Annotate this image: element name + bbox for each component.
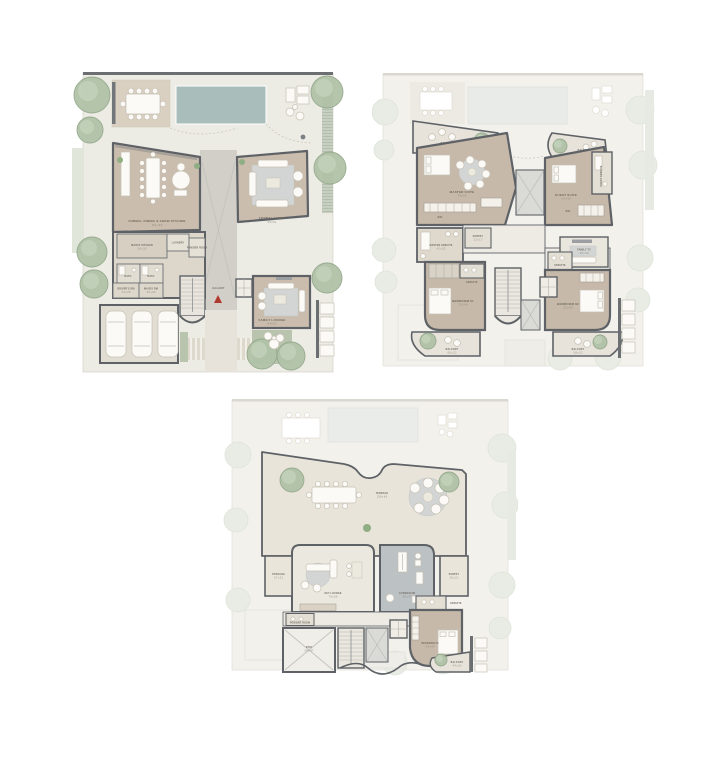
wardrobe-row: [412, 616, 419, 640]
car-icon: [106, 311, 126, 357]
room-label-sky-lounge: SKY LOUNGE: [324, 593, 341, 595]
tv-unit: [276, 277, 292, 280]
room-dims: 5.4 x 4.6: [562, 199, 572, 201]
room-label-maids-kitchen: MAID'S KITCHEN: [131, 244, 153, 247]
planter-icon: [194, 163, 200, 169]
bed: [438, 630, 458, 654]
room-label-terrace: TERRACE: [376, 492, 389, 495]
ghost-boundary: [383, 73, 643, 76]
tv-unit: [572, 240, 592, 244]
planter-icon: [239, 159, 245, 165]
room-label-balcony: BALCONY: [451, 661, 464, 664]
room-dims: 5.6 x 4.7: [403, 596, 413, 598]
potted-tree-icon: [439, 472, 459, 492]
driveway-walk: [205, 310, 237, 372]
room-label-formal-dining: FORMAL DINING & SHOW KITCHEN: [128, 219, 185, 223]
room-dims: 6.6 x 6.1: [268, 222, 278, 224]
floor-plan-sheet: GALLERY FORMAL DINING & SHOW KITCHEN 10.…: [0, 0, 727, 767]
ground-floor-plan: GALLERY FORMAL DINING & SHOW KITCHEN 10.…: [68, 56, 348, 378]
potted-tree-icon: [420, 333, 436, 349]
elevator: [540, 277, 557, 297]
room-maids: [139, 283, 163, 298]
elevator: [236, 279, 252, 297]
room-label-master-wic: WIC: [437, 217, 442, 219]
pergola: [618, 298, 635, 358]
room-storage: [265, 556, 292, 596]
room-label-storage: STORAGE: [272, 573, 285, 576]
ghost-tree-icon: [489, 617, 511, 639]
potted-plant-icon: [435, 654, 447, 666]
room-label-formal-living: FORMAL LIVING: [259, 216, 286, 220]
room-label-family-lounge: FAMILY LOUNGE: [259, 318, 286, 322]
ghost-tree-icon: [627, 245, 653, 271]
planter-icon: [363, 524, 371, 532]
room-label-pantry: PANTRY: [449, 573, 460, 576]
room-label-gallery: GALLERY: [212, 287, 225, 290]
hall: [548, 252, 572, 270]
room-label-drivers: DRIVER'S RM: [117, 289, 134, 291]
second-floor-plan: TERRACE 15.8 x 6.6 SKY LOUNGE 7.6 x 5.6 …: [222, 390, 518, 680]
bed: [424, 155, 450, 175]
tree-icon: [277, 342, 305, 370]
bed: [580, 290, 604, 312]
room-label-pantry: PANTRY: [473, 235, 484, 238]
ghost-tree-icon: [374, 140, 394, 160]
room-dims: 5.2 x 4.4: [459, 305, 469, 307]
first-floor-plan: BALCONY 7.4 x 2.5 BALCONY MASTER SUITE 7…: [372, 60, 670, 382]
room-label-gym: GYMNASIUM: [399, 592, 415, 595]
room-label-master-suite: MASTER SUITE: [450, 190, 475, 194]
room-label-bedroom-02: BEDROOM 02: [557, 302, 579, 306]
site-dot: [301, 135, 306, 140]
room-dims: 6.0 x 2.2: [448, 352, 458, 354]
room-label-balcony-bl: BALCONY: [446, 348, 459, 351]
boundary-wall: [83, 72, 333, 75]
ghost-tree-icon: [372, 238, 396, 262]
room-label-guest-suite: GUEST SUITE: [555, 193, 577, 197]
ghost-hedge: [645, 90, 654, 210]
ghost-driveway: [505, 340, 545, 366]
ghost-tree-icon: [372, 99, 398, 125]
car-icon: [158, 311, 178, 357]
room-label-void: VOID: [306, 647, 313, 649]
room-dims: 4.4 x 2.6: [453, 665, 463, 667]
room-label-guest-ensuite: GUEST ENSUITE: [601, 165, 603, 186]
ghost-pool: [328, 408, 418, 442]
ghost-tree-icon: [224, 508, 248, 532]
room-label-bedroom-01: BEDROOM 01: [452, 299, 474, 303]
room-label-laundry: LAUNDRY: [172, 242, 185, 245]
room-pantry: [440, 556, 468, 596]
room-label-bath-2: BATH: [147, 275, 154, 278]
bed: [429, 288, 451, 314]
ghost-pool: [468, 87, 567, 124]
room-dims: 5.8 x 2.2: [574, 352, 584, 354]
room-dims: 4.1 x 3.2: [437, 248, 447, 250]
ghost-tree-icon: [489, 572, 515, 598]
tree-icon: [74, 77, 110, 113]
pergola: [470, 636, 487, 672]
grass-patch: [180, 332, 188, 362]
kitchenette: [300, 604, 336, 611]
grass-strip-left: [72, 148, 83, 253]
elevator: [390, 620, 407, 638]
room-dims: 15.8 x 6.6: [377, 496, 388, 498]
tree-icon: [77, 117, 103, 143]
wardrobe-row: [580, 273, 604, 282]
room-label-bedroom-01-ensuite: ENSUITE: [466, 282, 478, 284]
room-label-bedroom-03-ensuite: ENSUITE: [450, 603, 462, 605]
room-label-powder: POWDER ROOM: [187, 248, 207, 250]
bed: [552, 165, 576, 183]
staircase: [338, 628, 364, 668]
room-dims: 10.1 x 6.8: [152, 225, 163, 227]
room-dims: 5.6 x 4.7: [305, 650, 315, 652]
planter-icon: [117, 157, 123, 163]
room-dims: 2.6 x 2.1: [450, 577, 460, 579]
room-drivers: [113, 283, 139, 298]
staircase: [180, 276, 205, 323]
room-label-master-ensuite: MASTER ENSUITE: [429, 244, 452, 247]
room-label-family-tv: FAMILY TV: [577, 249, 591, 252]
paving-hatch: [186, 338, 205, 360]
room-dims: 5.2 x 4.3: [564, 308, 574, 310]
ghost-tree-icon: [226, 588, 250, 612]
room-dims: 3.4 x 2.8: [122, 292, 132, 294]
room-label-bedroom-03: BEDROOM 03: [421, 643, 439, 645]
potted-tree-icon: [553, 139, 567, 153]
ghost-tree-icon: [375, 271, 397, 293]
room-label-bedroom-02-ensuite: ENSUITE: [554, 265, 566, 267]
room-dims: 6.4 x 6.0: [268, 324, 278, 326]
room-label-bath-1: BATH: [124, 275, 131, 278]
tree-icon: [312, 263, 342, 293]
room-dims: 2.1 x 1.7: [474, 239, 484, 241]
room-label-maids: MAID'S RM: [144, 288, 158, 291]
swimming-pool: [176, 86, 266, 124]
deck-wall: [112, 82, 116, 124]
potted-tree-icon: [280, 468, 304, 492]
ghost-tree-icon: [225, 442, 251, 468]
room-label-balcony-br: BALCONY: [572, 348, 585, 351]
potted-tree-icon: [593, 335, 607, 349]
tree-icon: [311, 76, 343, 108]
staircase: [495, 268, 521, 324]
room-dims: 3.4 x 2.8: [147, 292, 157, 294]
room-dims: 4.9 x 3.9: [580, 253, 590, 255]
wardrobe-row: [578, 205, 604, 216]
room-label-powder: POWDER ROOM: [290, 623, 310, 625]
car-icon: [132, 311, 152, 357]
ghost-boundary: [232, 399, 508, 402]
tree-icon: [77, 237, 107, 267]
ghost-hedge: [508, 450, 516, 560]
room-dims: 2.7 x 2.1: [274, 577, 284, 579]
room-sky-lounge: [292, 545, 374, 612]
room-dims: 7.6 x 5.6: [329, 596, 339, 598]
room-label-guest-wic: WIC: [565, 211, 570, 213]
wardrobe-row: [429, 264, 459, 278]
tree-icon: [314, 152, 346, 184]
room-dims: 7.6 x 6.4: [458, 196, 468, 198]
tree-icon: [80, 270, 108, 298]
room-pantry: [465, 228, 491, 248]
room-dims: 3.6 x 3.2: [138, 249, 148, 251]
room-dims: 5.4 x 4.4: [426, 646, 436, 648]
